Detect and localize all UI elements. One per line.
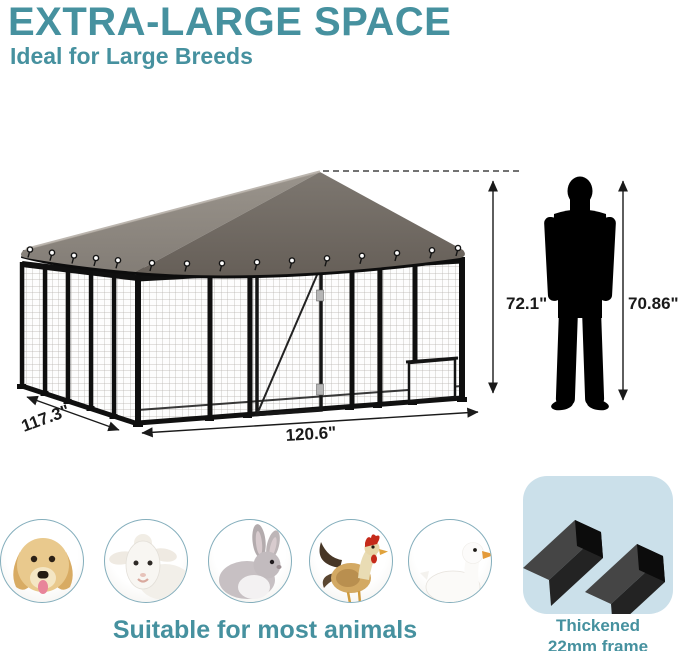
rooster-icon xyxy=(310,520,393,603)
animals-caption: Suitable for most animals xyxy=(60,616,470,645)
person-silhouette xyxy=(544,177,616,412)
dog-icon xyxy=(1,520,84,603)
door-hinge-bottom xyxy=(317,384,324,395)
animal-photo-dog xyxy=(0,519,84,603)
animal-photo-duck xyxy=(408,519,492,603)
door-hinge-top xyxy=(317,290,324,301)
product-infographic: EXTRA-LARGE SPACE Ideal for Large Breeds xyxy=(0,0,679,651)
feature-caption-line1: Thickened xyxy=(556,616,640,635)
rabbit-icon xyxy=(209,520,292,603)
duck-icon xyxy=(409,520,492,603)
animal-photo-rooster xyxy=(309,519,393,603)
frame-tubes-illustration xyxy=(523,476,673,614)
feature-caption-line2: 22mm frame xyxy=(548,637,648,651)
kennel-roof xyxy=(21,172,465,276)
sheep-icon xyxy=(105,520,188,603)
width-dimension-label: 120.6" xyxy=(285,423,337,445)
depth-dimension-label: 117.3" xyxy=(19,401,72,436)
animal-photo-sheep xyxy=(104,519,188,603)
thickened-frame-card xyxy=(523,476,673,614)
kennel-height-dimension-label: 72.1" xyxy=(506,294,547,313)
person-height-dimension-label: 70.86" xyxy=(628,294,679,313)
feature-caption: Thickened 22mm frame xyxy=(518,616,678,651)
kennel-feed-hatch xyxy=(406,358,458,401)
kennel-front-wall xyxy=(133,257,467,427)
animal-photo-rabbit xyxy=(208,519,292,603)
